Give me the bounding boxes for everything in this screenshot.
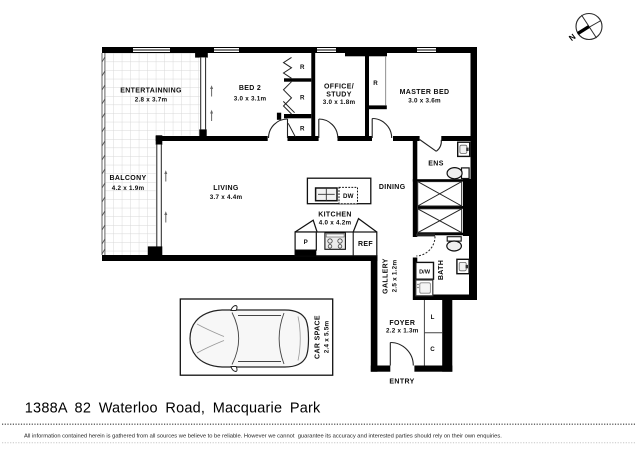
- svg-text:R: R: [300, 94, 305, 101]
- svg-text:OFFICE/: OFFICE/: [324, 83, 354, 90]
- svg-text:C: C: [430, 346, 435, 353]
- svg-text:DINING: DINING: [379, 184, 406, 191]
- svg-text:BALCONY: BALCONY: [109, 175, 146, 182]
- svg-text:ENTERTAINNING: ENTERTAINNING: [120, 88, 182, 95]
- svg-text:LIVING: LIVING: [213, 185, 239, 192]
- svg-text:ENTRY: ENTRY: [389, 378, 414, 385]
- svg-text:STUDY: STUDY: [326, 92, 351, 99]
- svg-text:3.7 x 4.4m: 3.7 x 4.4m: [210, 194, 243, 201]
- svg-text:P: P: [304, 239, 308, 246]
- svg-text:BATH: BATH: [438, 260, 445, 280]
- svg-text:1388A 82 Waterloo Road, Macqua: 1388A 82 Waterloo Road, Macquarie Park: [25, 401, 321, 417]
- svg-text:L: L: [431, 314, 435, 321]
- svg-text:3.0 x 3.6m: 3.0 x 3.6m: [408, 97, 441, 104]
- svg-text:4.2 x 1.9m: 4.2 x 1.9m: [112, 185, 145, 192]
- svg-text:R: R: [300, 64, 305, 71]
- svg-text:REF: REF: [358, 241, 373, 248]
- svg-text:GALLERY: GALLERY: [382, 258, 389, 294]
- svg-text:CAR SPACE: CAR SPACE: [315, 315, 322, 359]
- svg-text:2.5 x 1.2m: 2.5 x 1.2m: [392, 260, 399, 293]
- svg-text:2.8 x 3.7m: 2.8 x 3.7m: [135, 96, 168, 103]
- svg-text:4.0 x 4.2m: 4.0 x 4.2m: [319, 220, 352, 227]
- svg-text:FOYER: FOYER: [389, 320, 415, 327]
- svg-text:KITCHEN: KITCHEN: [318, 211, 352, 218]
- svg-text:2.2 x 1.3m: 2.2 x 1.3m: [386, 328, 419, 335]
- svg-text:All information contained here: All information contained herein is gath…: [24, 433, 502, 439]
- svg-text:ENS: ENS: [428, 160, 443, 167]
- svg-text:3.0 x 1.8m: 3.0 x 1.8m: [323, 99, 356, 106]
- svg-text:DW: DW: [343, 193, 354, 200]
- svg-text:MASTER BED: MASTER BED: [400, 89, 450, 96]
- svg-text:R: R: [300, 125, 305, 132]
- svg-text:BED 2: BED 2: [239, 85, 261, 92]
- svg-text:D/W: D/W: [419, 270, 431, 276]
- svg-text:2.4 x 5.5m: 2.4 x 5.5m: [324, 321, 331, 354]
- svg-text:R: R: [373, 80, 378, 87]
- svg-text:3.0 x 3.1m: 3.0 x 3.1m: [234, 95, 267, 102]
